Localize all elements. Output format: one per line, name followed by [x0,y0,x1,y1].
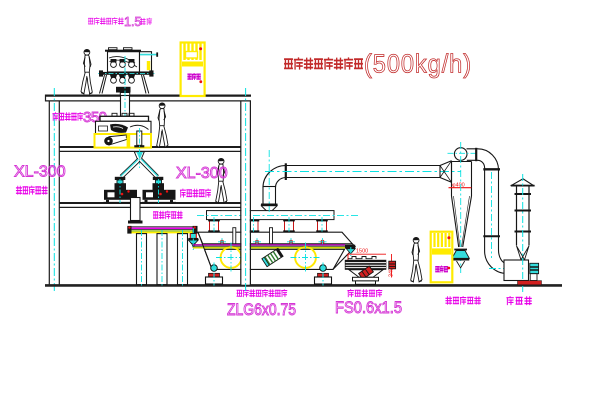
svg-text:FS0.6x1.5: FS0.6x1.5 [335,299,402,317]
svg-text:1.5: 1.5 [124,15,141,29]
svg-text:XL-300: XL-300 [14,164,66,181]
svg-text:φ400: φ400 [452,183,465,189]
svg-text:ZLG6x0.75: ZLG6x0.75 [227,301,296,319]
svg-text:(500kg/h): (500kg/h) [364,49,472,79]
svg-text:XL-300: XL-300 [176,165,228,182]
svg-text:1500: 1500 [356,249,368,255]
